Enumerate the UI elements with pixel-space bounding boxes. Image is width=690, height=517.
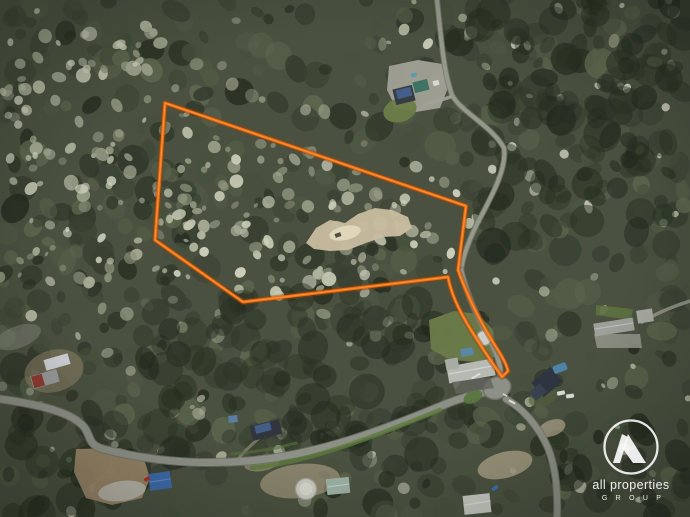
aerial-scene: all properties G R O U P (0, 0, 690, 517)
watermark-brand-name: all properties (592, 478, 669, 492)
aerial-photo: all properties G R O U P (0, 0, 690, 517)
vignette-overlay (0, 0, 690, 517)
watermark-brand-group: G R O U P (602, 495, 664, 502)
